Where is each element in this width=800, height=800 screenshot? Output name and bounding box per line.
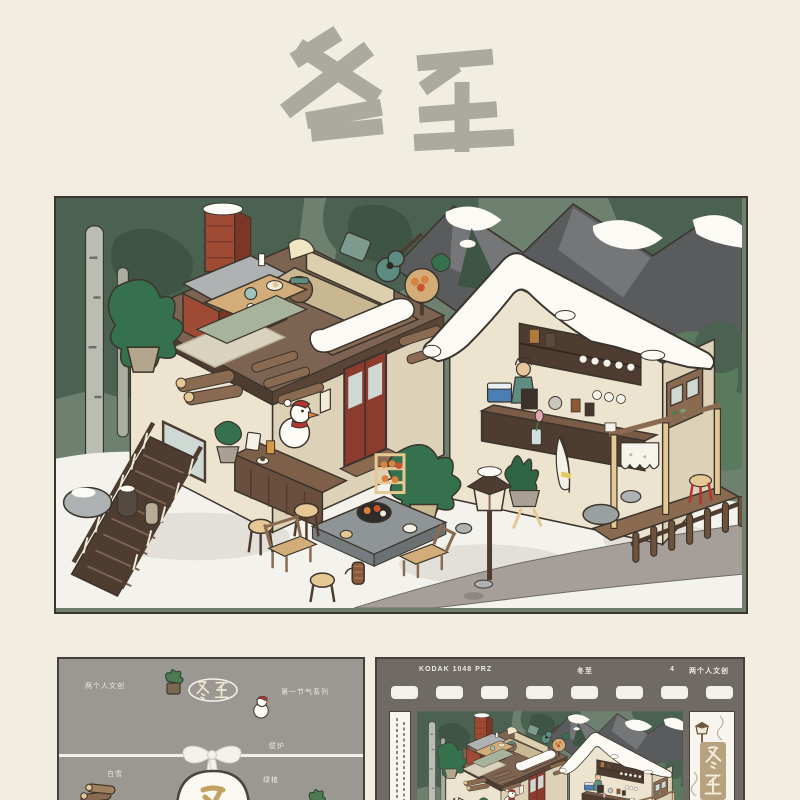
tape-char-zhi [414, 49, 515, 152]
vertical-text-decoration [390, 712, 410, 800]
sprocket-hole [616, 686, 643, 699]
film-frame-number: 4 [670, 666, 675, 673]
plant-icon-dark [303, 787, 329, 800]
sprocket-hole [661, 686, 688, 699]
film-frame-illustration [417, 711, 683, 800]
tape-char-dong [280, 26, 384, 142]
sprocket-hole [526, 686, 553, 699]
snowman-icon [251, 695, 271, 719]
sprocket-hole [436, 686, 463, 699]
plant-label: 绿植 [263, 775, 279, 785]
film-card[interactable]: KODAK 1048 PRZ 冬至 4 两个人文创 [375, 657, 745, 800]
solstice-panel-art [690, 712, 734, 800]
sprocket-hole [706, 686, 733, 699]
poster-page: 冬至 两个人文创 [0, 0, 800, 800]
main-illustration-frame [54, 196, 748, 614]
series-label: 第一节气系列 [281, 687, 329, 697]
snow-label: 白雪 [107, 769, 123, 779]
vertical-text-strip [389, 711, 411, 800]
logs-icon [79, 781, 119, 800]
info-card[interactable]: 两个人文创 第一节气系列 壁炉 白雪 绿植 [57, 657, 365, 800]
solstice-badge [187, 677, 239, 703]
film-title-label: 冬至 [577, 666, 593, 676]
fireplace-label: 壁炉 [269, 741, 285, 751]
tape-title [0, 0, 800, 175]
film-brand-label: KODAK 1048 PRZ [419, 666, 492, 673]
main-illustration [56, 198, 742, 608]
studio-brand-label: 两个人文创 [85, 681, 125, 691]
sprocket-hole [391, 686, 418, 699]
film-studio-label: 两个人文创 [689, 666, 729, 676]
plant-icon [159, 667, 187, 699]
sprocket-hole [481, 686, 508, 699]
lantern-icon [695, 722, 710, 745]
sprocket-hole [571, 686, 598, 699]
winter-arch [169, 765, 257, 800]
solstice-panel: 冬至 [689, 711, 735, 800]
